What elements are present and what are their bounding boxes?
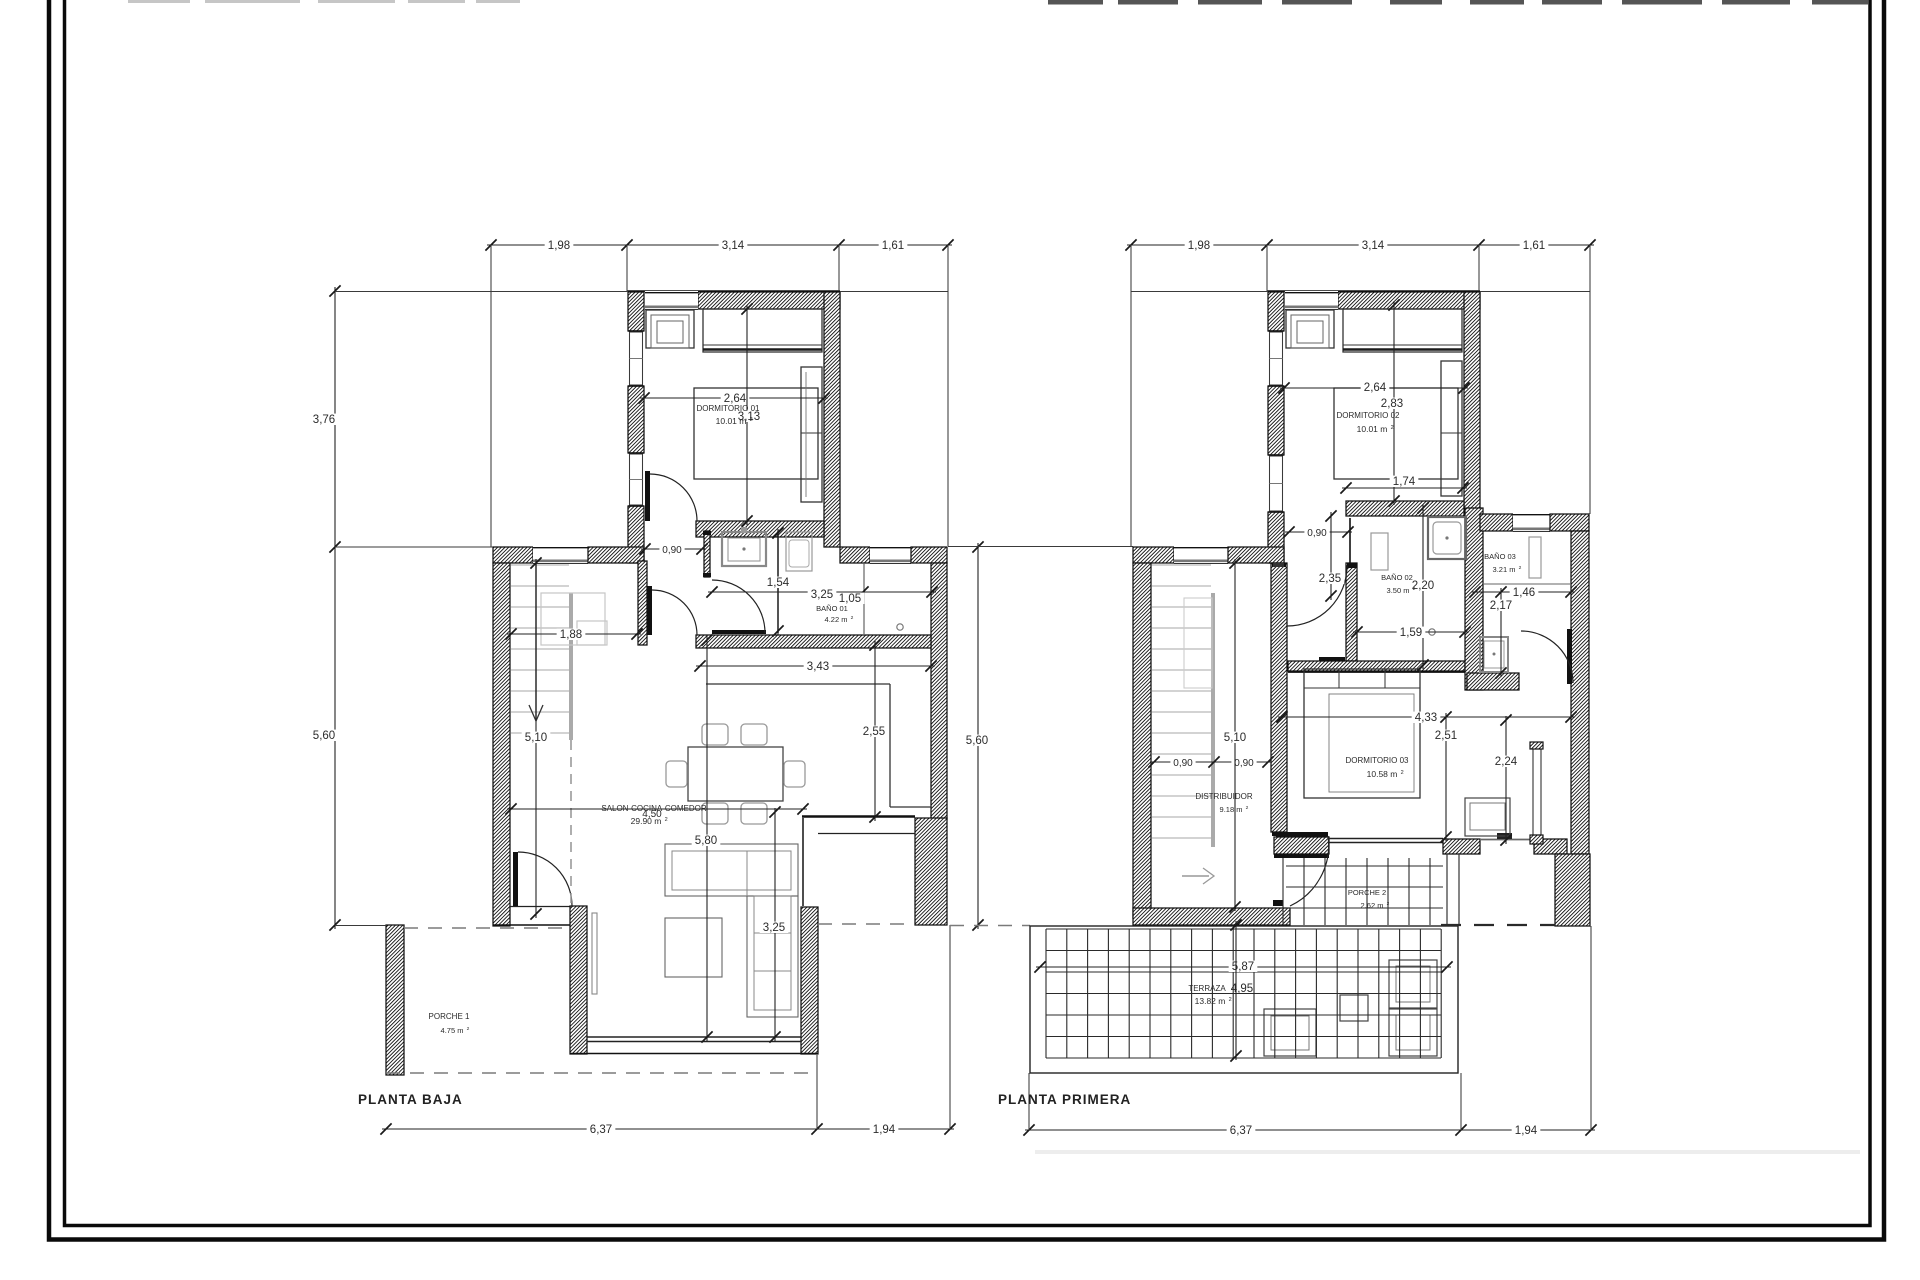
svg-text:5,10: 5,10 — [1224, 732, 1246, 744]
svg-text:BAÑO 03: BAÑO 03 — [1484, 552, 1516, 561]
svg-text:PORCHE 1: PORCHE 1 — [429, 1012, 470, 1021]
svg-text:1,88: 1,88 — [560, 629, 582, 641]
svg-text:13.82 m: 13.82 m — [1195, 996, 1226, 1006]
svg-text:1,94: 1,94 — [1515, 1125, 1538, 1137]
svg-text:0,90: 0,90 — [1234, 758, 1254, 769]
svg-text:1,74: 1,74 — [1393, 476, 1416, 488]
svg-text:4.75 m: 4.75 m — [441, 1026, 464, 1035]
svg-text:4,33: 4,33 — [1415, 712, 1437, 724]
svg-text:0,90: 0,90 — [662, 545, 682, 556]
svg-text:10.01 m: 10.01 m — [716, 416, 747, 426]
svg-text:5,10: 5,10 — [525, 732, 547, 744]
svg-text:4.22 m: 4.22 m — [825, 615, 848, 624]
svg-text:TERRAZA: TERRAZA — [1188, 984, 1226, 993]
svg-text:2: 2 — [467, 1026, 470, 1032]
svg-text:3,25: 3,25 — [811, 589, 833, 601]
svg-text:6,37: 6,37 — [1230, 1125, 1252, 1137]
svg-text:2,83: 2,83 — [1381, 398, 1403, 410]
svg-text:BAÑO 01: BAÑO 01 — [816, 604, 848, 613]
svg-text:1,61: 1,61 — [1523, 240, 1545, 252]
svg-text:1,98: 1,98 — [548, 240, 570, 252]
svg-text:2: 2 — [1387, 901, 1390, 907]
svg-text:5,87: 5,87 — [1232, 961, 1254, 973]
svg-text:1,98: 1,98 — [1188, 240, 1210, 252]
svg-text:2: 2 — [1413, 586, 1416, 592]
svg-text:2: 2 — [1391, 425, 1394, 431]
svg-text:SALON-COCINA-COMEDOR: SALON-COCINA-COMEDOR — [601, 804, 707, 813]
svg-text:0,90: 0,90 — [1307, 528, 1327, 539]
svg-text:6,37: 6,37 — [590, 1124, 612, 1136]
svg-text:3,14: 3,14 — [722, 240, 745, 252]
svg-text:PORCHE 2: PORCHE 2 — [1348, 888, 1386, 897]
svg-text:3,76: 3,76 — [313, 414, 335, 426]
svg-text:2: 2 — [1246, 805, 1249, 811]
svg-text:10.01 m: 10.01 m — [1357, 424, 1388, 434]
svg-text:2.62 m: 2.62 m — [1361, 901, 1384, 910]
svg-text:2: 2 — [1519, 565, 1522, 571]
svg-text:3,43: 3,43 — [807, 661, 829, 673]
svg-text:3,14: 3,14 — [1362, 240, 1385, 252]
svg-text:5,60: 5,60 — [966, 735, 988, 747]
svg-text:0,90: 0,90 — [1173, 758, 1193, 769]
svg-text:3.50 m: 3.50 m — [1387, 586, 1410, 595]
svg-text:9.18 m: 9.18 m — [1220, 805, 1243, 814]
svg-text:2,51: 2,51 — [1435, 730, 1457, 742]
svg-text:2,35: 2,35 — [1319, 573, 1341, 585]
svg-text:BAÑO 02: BAÑO 02 — [1381, 573, 1413, 582]
svg-text:1,54: 1,54 — [767, 577, 790, 589]
svg-text:2: 2 — [1229, 997, 1232, 1003]
svg-text:10.58 m: 10.58 m — [1367, 769, 1398, 779]
svg-text:2,24: 2,24 — [1495, 756, 1518, 768]
svg-text:PLANTA PRIMERA: PLANTA PRIMERA — [998, 1092, 1131, 1107]
svg-text:2,55: 2,55 — [863, 726, 885, 738]
svg-text:DORMITORIO 01: DORMITORIO 01 — [697, 404, 761, 413]
svg-text:PLANTA BAJA: PLANTA BAJA — [358, 1092, 463, 1107]
svg-text:1,59: 1,59 — [1400, 627, 1422, 639]
svg-text:4,95: 4,95 — [1231, 983, 1253, 995]
svg-text:3.21 m: 3.21 m — [1493, 565, 1516, 574]
svg-text:DISTRIBUIDOR: DISTRIBUIDOR — [1195, 792, 1253, 801]
svg-text:5,80: 5,80 — [695, 835, 717, 847]
svg-text:2: 2 — [851, 615, 854, 621]
svg-text:2,64: 2,64 — [1364, 382, 1387, 394]
svg-text:29.90 m: 29.90 m — [631, 816, 662, 826]
svg-text:DORMITORIO 02: DORMITORIO 02 — [1337, 411, 1401, 420]
svg-text:2: 2 — [665, 817, 668, 823]
svg-text:2,17: 2,17 — [1490, 600, 1512, 612]
svg-text:2: 2 — [750, 417, 753, 423]
svg-text:1,94: 1,94 — [873, 1124, 896, 1136]
svg-text:DORMITORIO 03: DORMITORIO 03 — [1346, 756, 1410, 765]
svg-text:3,25: 3,25 — [763, 922, 785, 934]
svg-text:1,61: 1,61 — [882, 240, 904, 252]
svg-text:5,60: 5,60 — [313, 730, 335, 742]
svg-text:1,46: 1,46 — [1513, 587, 1535, 599]
svg-text:2: 2 — [1401, 770, 1404, 776]
